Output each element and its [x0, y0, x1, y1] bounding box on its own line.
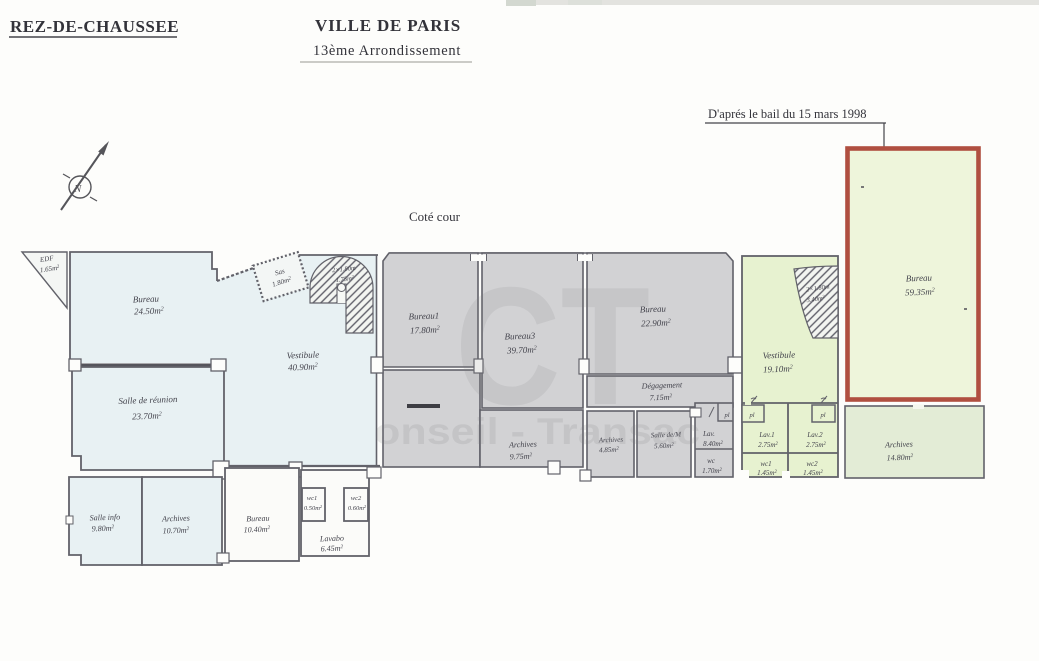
svg-text:VILLE DE PARIS: VILLE DE PARIS: [315, 16, 461, 35]
svg-text:40.90m2: 40.90m2: [288, 361, 318, 372]
svg-text:Salle de réunion: Salle de réunion: [118, 394, 178, 406]
svg-text:N: N: [73, 183, 82, 195]
svg-text:1.45m2: 1.45m2: [757, 469, 777, 477]
svg-text:Vestibule: Vestibule: [286, 349, 319, 360]
svg-text:Lavabo: Lavabo: [319, 534, 344, 544]
svg-text:9.75m2: 9.75m2: [509, 452, 532, 462]
svg-text:wc2: wc2: [351, 495, 362, 502]
svg-text:Coté cour: Coté cour: [409, 209, 461, 224]
svg-text:6.45m2: 6.45m2: [320, 544, 343, 554]
svg-text:wc: wc: [707, 457, 716, 465]
svg-text:pl: pl: [819, 412, 825, 419]
svg-text:23.70m2: 23.70m2: [132, 410, 162, 421]
svg-text:Lav.1: Lav.1: [758, 431, 774, 439]
svg-text:13ème Arrondissement: 13ème Arrondissement: [313, 43, 461, 59]
svg-text:onseil - Transac: onseil - Transac: [374, 411, 700, 452]
svg-text:pl: pl: [723, 412, 729, 419]
svg-text:Bureau: Bureau: [246, 514, 270, 524]
svg-text:9.80m2: 9.80m2: [91, 524, 114, 534]
svg-text:REZ-DE-CHAUSSEE: REZ-DE-CHAUSSEE: [10, 17, 179, 36]
svg-text:1.70m2: 1.70m2: [702, 467, 722, 475]
svg-text:19.10m2: 19.10m2: [763, 363, 793, 374]
svg-text:wc1: wc1: [307, 495, 317, 502]
svg-text:pl: pl: [748, 412, 754, 419]
svg-text:D'aprés le bail du 15 mars 199: D'aprés le bail du 15 mars 1998: [708, 107, 866, 121]
svg-text:14.80m2: 14.80m2: [886, 453, 913, 463]
svg-text:17.80m2: 17.80m2: [410, 324, 440, 335]
svg-text:Salle info: Salle info: [90, 512, 121, 522]
svg-text:59.35m2: 59.35m2: [905, 286, 935, 297]
svg-text:Vestibule: Vestibule: [762, 349, 795, 360]
svg-text:2.75m2: 2.75m2: [806, 441, 826, 449]
svg-text:Bureau1: Bureau1: [408, 310, 439, 321]
svg-text:8.40m2: 8.40m2: [703, 440, 723, 448]
svg-text:wc1: wc1: [760, 460, 771, 468]
svg-text:Bureau: Bureau: [906, 273, 933, 284]
svg-text:24.50m2: 24.50m2: [134, 305, 164, 316]
svg-text:7.15m2: 7.15m2: [649, 393, 672, 403]
svg-text:10.40m2: 10.40m2: [243, 525, 270, 535]
svg-text:2.75m2: 2.75m2: [758, 441, 778, 449]
svg-text:10.70m2: 10.70m2: [162, 526, 189, 536]
svg-text:Lav.: Lav.: [702, 430, 715, 438]
svg-text:Archives: Archives: [161, 514, 190, 524]
svg-text:Bureau: Bureau: [133, 294, 160, 305]
svg-text:wc2: wc2: [806, 460, 818, 468]
svg-text:1.45m2: 1.45m2: [803, 469, 823, 477]
svg-text:Lav.2: Lav.2: [806, 431, 823, 439]
svg-text:Archives: Archives: [884, 440, 913, 450]
